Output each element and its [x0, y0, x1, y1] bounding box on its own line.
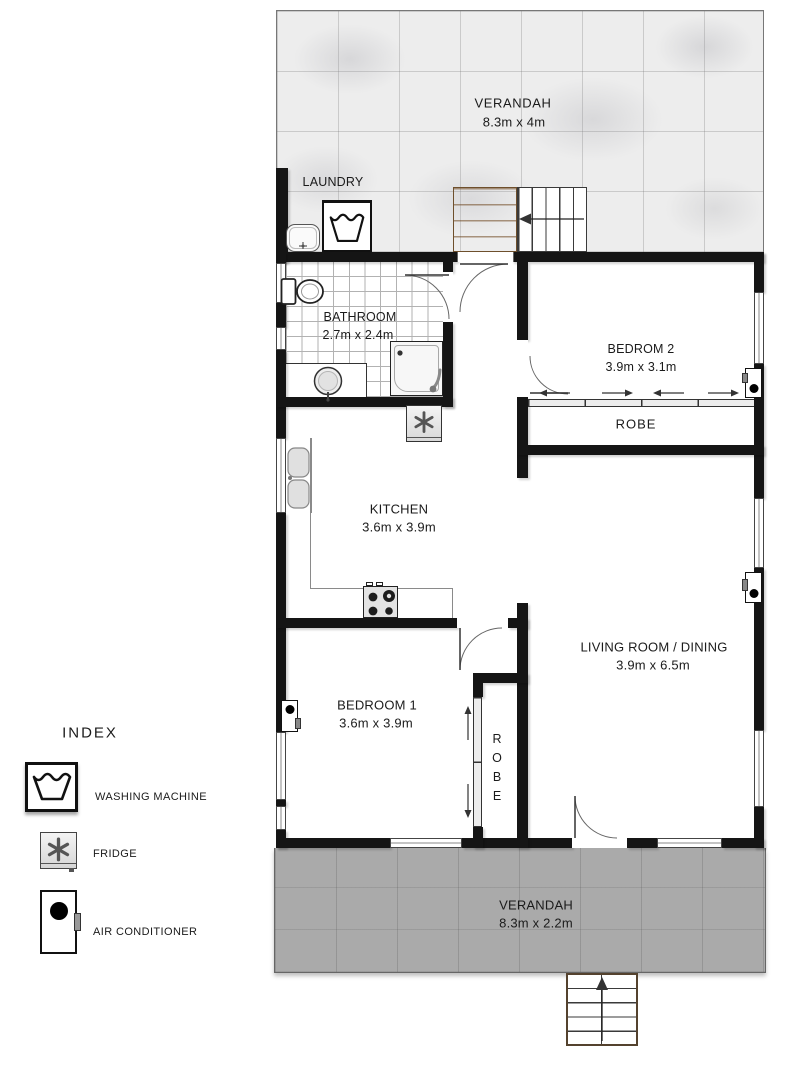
shower [390, 341, 443, 396]
wall-segment [517, 603, 528, 848]
living-dims: 3.9m x 6.5m [616, 658, 690, 673]
floorplan-canvas: VERANDAH 8.3m x 4m LAUNDRY BATHROOM 2.7m… [0, 0, 800, 1066]
air-conditioner-icon [40, 890, 77, 954]
wall-segment [517, 445, 764, 455]
shower-tray [394, 345, 439, 392]
bathroom-door-opening [443, 272, 453, 322]
sliding-arrows-bedroom1-robe [465, 706, 472, 818]
legend-label-fridge: FRIDGE [93, 848, 137, 860]
bedroom2-robe-label: ROBE [616, 417, 657, 432]
wall-segment [276, 252, 457, 262]
window [276, 806, 286, 830]
washing-machine-icon [25, 762, 78, 812]
wall-segment [754, 252, 764, 292]
counter-edge [452, 588, 453, 618]
verandah-door-opening [572, 838, 627, 848]
air-conditioner-dot [749, 384, 758, 393]
bathroom-name: BATHROOM [324, 310, 397, 324]
air-conditioner-dot [749, 589, 758, 598]
bedroom1-name: BEDROOM 1 [337, 698, 417, 713]
stove-knob [366, 582, 373, 586]
kitchen-name: KITCHEN [370, 502, 428, 517]
air-conditioner-dot [285, 705, 294, 714]
washing-machine-icon [324, 203, 370, 250]
stairs-centerline [601, 975, 602, 1044]
kitchen-dims: 3.6m x 3.9m [362, 520, 436, 535]
window [276, 438, 286, 513]
wall-segment [276, 252, 286, 263]
stove-cooktop [363, 586, 398, 618]
wall-segment [276, 618, 457, 628]
wood-landing [453, 187, 517, 252]
legend-label-air-conditioner: AIR CONDITIONER [93, 926, 197, 938]
entry-door-swing [460, 264, 508, 312]
wall-segment [473, 827, 483, 848]
wall-segment [443, 322, 453, 407]
sliding-arrows-bedroom2-robe [539, 390, 739, 397]
window [754, 292, 764, 364]
air-conditioner-bedroom1 [281, 700, 298, 732]
fridge [406, 405, 442, 442]
stairs-bottom [566, 973, 638, 1046]
fridge-door-line [407, 437, 441, 438]
stairs-top [517, 187, 587, 252]
laundry-name: LAUNDRY [303, 175, 364, 189]
living-name: LIVING ROOM / DINING [580, 640, 727, 655]
verandah-top-dims: 8.3m x 4m [483, 115, 545, 130]
entry-door-opening [457, 252, 514, 262]
fridge-foot [69, 868, 74, 872]
bedroom2-name: BEDROM 2 [608, 342, 675, 356]
legend-label-washing-machine: WASHING MACHINE [95, 791, 207, 803]
bedroom2-dims: 3.9m x 3.1m [606, 360, 677, 374]
air-conditioner-living [745, 572, 762, 603]
wall-segment [276, 303, 286, 327]
index-title: INDEX [62, 725, 118, 742]
fridge-asterisk-icon [407, 406, 441, 441]
wall-segment [722, 838, 764, 848]
bedroom1-dims: 3.6m x 3.9m [339, 716, 413, 731]
verandah-door-swing [575, 796, 617, 838]
air-conditioner-tab [74, 913, 81, 931]
stove-knob [376, 582, 383, 586]
verandah-bottom-dims: 8.3m x 2.2m [499, 916, 573, 931]
verandah-bottom-name: VERANDAH [499, 898, 573, 913]
bedroom2-robe-sliding-doors [528, 399, 754, 407]
fridge-door-line [41, 863, 76, 864]
window [390, 838, 462, 848]
wall-segment [443, 262, 453, 272]
air-conditioner-tab [742, 579, 748, 591]
wall-segment [276, 350, 286, 438]
bedroom1-robe-label: ROBE [490, 732, 504, 808]
counter-edge [310, 438, 311, 588]
air-conditioner-dot [50, 902, 68, 920]
fridge-icon [40, 832, 77, 869]
bedroom1-door-swing [460, 628, 502, 670]
window [754, 498, 764, 568]
window [657, 838, 722, 848]
bedroom1-robe-sliding-doors [473, 697, 482, 827]
bathroom-vanity-counter [284, 363, 367, 398]
wall-segment [473, 683, 483, 697]
wall-segment [627, 838, 657, 848]
wall-segment [276, 838, 390, 848]
window [276, 732, 286, 800]
air-conditioner-tab [295, 718, 301, 729]
wall-segment [512, 252, 764, 262]
bedroom2-door-swing [530, 356, 568, 394]
kitchen-sink-counter [284, 438, 312, 513]
washing-machine [322, 200, 372, 252]
air-conditioner-bedroom2 [745, 368, 762, 398]
window [276, 327, 286, 350]
wall-segment [473, 673, 528, 683]
wall-segment [276, 168, 288, 262]
wall-segment [517, 262, 528, 340]
wall-segment [517, 397, 528, 478]
verandah-top-name: VERANDAH [474, 96, 551, 111]
window [276, 263, 286, 303]
bedroom1-door-opening [457, 618, 508, 628]
bathroom-dims: 2.7m x 2.4m [323, 328, 394, 342]
window [754, 730, 764, 807]
laundry-tub [286, 224, 320, 252]
washing-machine-glyph [28, 765, 75, 809]
laundry-tub-basin [289, 227, 317, 249]
air-conditioner-tab [742, 373, 748, 383]
bedroom2-door-opening [517, 340, 528, 397]
